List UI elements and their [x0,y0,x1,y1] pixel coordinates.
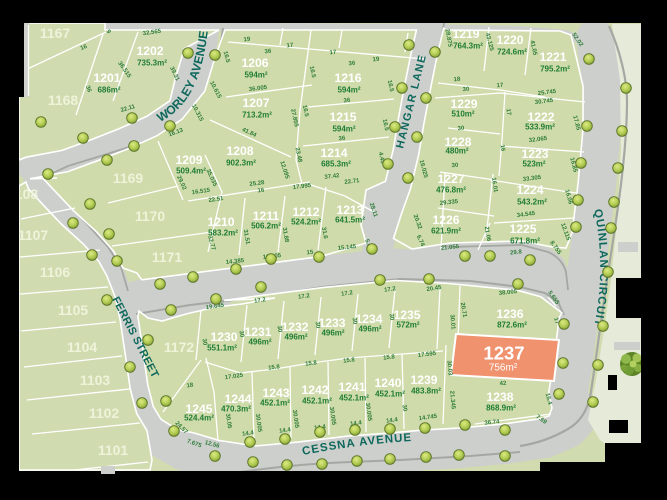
svg-text:795.2m²: 795.2m² [540,65,570,74]
svg-text:685.3m²: 685.3m² [321,160,351,169]
svg-text:1171: 1171 [152,249,183,265]
svg-text:36: 36 [343,98,351,105]
svg-text:1107: 1107 [18,227,49,243]
svg-text:1239: 1239 [410,373,437,387]
svg-text:42: 42 [499,381,507,387]
svg-text:17: 17 [329,50,337,57]
svg-text:483.8m²: 483.8m² [411,387,441,396]
svg-text:572m²: 572m² [396,321,419,330]
svg-text:1106: 1106 [40,264,71,280]
svg-text:1214: 1214 [320,146,347,160]
svg-text:1215: 1215 [329,110,356,124]
svg-text:496m²: 496m² [321,329,344,338]
svg-text:480m²: 480m² [445,147,468,156]
svg-text:476.8m²: 476.8m² [436,186,466,195]
svg-text:17: 17 [496,83,504,90]
svg-text:594m²: 594m² [332,125,355,134]
svg-text:452.1m²: 452.1m² [260,399,290,408]
svg-text:671.8m²: 671.8m² [510,237,540,246]
svg-text:1225: 1225 [509,222,536,236]
svg-text:1238: 1238 [486,390,513,404]
svg-text:524.4m²: 524.4m² [184,414,214,423]
svg-text:18: 18 [453,77,461,84]
svg-text:1220: 1220 [496,33,523,47]
svg-text:1206: 1206 [241,56,268,70]
svg-text:452.1m²: 452.1m² [375,390,405,399]
svg-text:1242: 1242 [301,383,328,397]
svg-text:641.5m²: 641.5m² [335,216,365,225]
svg-text:1201: 1201 [93,71,120,85]
svg-text:1170: 1170 [135,208,166,224]
svg-text:36: 36 [264,49,272,56]
svg-text:506.2m²: 506.2m² [251,222,281,231]
svg-text:1236: 1236 [496,307,523,321]
svg-text:1230: 1230 [210,330,237,344]
svg-text:1208: 1208 [226,144,253,158]
svg-text:724.6m²: 724.6m² [497,48,527,57]
svg-text:1226: 1226 [432,213,459,227]
svg-text:30: 30 [457,126,465,133]
svg-text:1207: 1207 [242,96,269,110]
svg-text:543.2m²: 543.2m² [517,198,547,207]
svg-text:902.3m²: 902.3m² [226,159,256,168]
svg-text:19: 19 [372,57,380,64]
svg-text:1168: 1168 [48,92,79,108]
svg-text:1227: 1227 [437,172,464,186]
svg-text:1216: 1216 [334,71,361,85]
svg-text:29.8: 29.8 [510,249,523,256]
svg-text:30: 30 [462,87,470,94]
svg-text:713.2m²: 713.2m² [242,111,272,120]
svg-text:621.9m²: 621.9m² [431,227,461,236]
svg-text:523m²: 523m² [522,160,545,169]
svg-text:1221: 1221 [539,50,566,64]
svg-text:1237: 1237 [483,343,524,364]
svg-text:496m²: 496m² [358,325,381,334]
svg-text:1241: 1241 [338,380,365,394]
svg-text:1219: 1219 [452,27,479,41]
svg-text:868.9m²: 868.9m² [486,404,516,413]
svg-text:1105: 1105 [58,302,89,318]
svg-text:36: 36 [338,136,346,143]
svg-text:756m²: 756m² [489,363,518,374]
svg-text:551.1m²: 551.1m² [207,344,237,353]
svg-text:19: 19 [243,37,251,44]
svg-text:764.3m²: 764.3m² [453,42,483,51]
svg-text:594m²: 594m² [337,86,360,95]
svg-text:1172: 1172 [164,339,195,355]
svg-text:470.3m²: 470.3m² [221,405,251,414]
svg-text:30: 30 [451,163,459,170]
svg-text:1209: 1209 [175,153,202,167]
svg-text:872.6m²: 872.6m² [497,321,527,330]
svg-text:1102: 1102 [89,405,120,421]
svg-text:1167: 1167 [40,25,71,41]
svg-text:15: 15 [306,250,314,257]
svg-text:735.3m²: 735.3m² [137,59,167,68]
svg-text:17: 17 [286,43,294,50]
svg-text:1103: 1103 [80,372,111,388]
svg-text:524.2m²: 524.2m² [291,218,321,227]
svg-text:36: 36 [348,61,356,68]
svg-text:686m²: 686m² [97,86,120,95]
svg-text:510m²: 510m² [451,110,474,119]
svg-text:452.1m²: 452.1m² [302,397,332,406]
svg-text:1210: 1210 [207,215,234,229]
svg-text:1169: 1169 [113,170,144,186]
svg-text:1104: 1104 [67,339,98,355]
svg-text:452.1m²: 452.1m² [339,394,369,403]
svg-text:1101: 1101 [98,442,129,458]
svg-text:1224: 1224 [516,183,543,197]
svg-text:1202: 1202 [136,44,163,58]
svg-text:496m²: 496m² [248,338,271,347]
svg-text:594m²: 594m² [244,71,267,80]
svg-text:1240: 1240 [374,376,401,390]
svg-text:496m²: 496m² [284,333,307,342]
svg-text:533.9m²: 533.9m² [525,123,555,132]
